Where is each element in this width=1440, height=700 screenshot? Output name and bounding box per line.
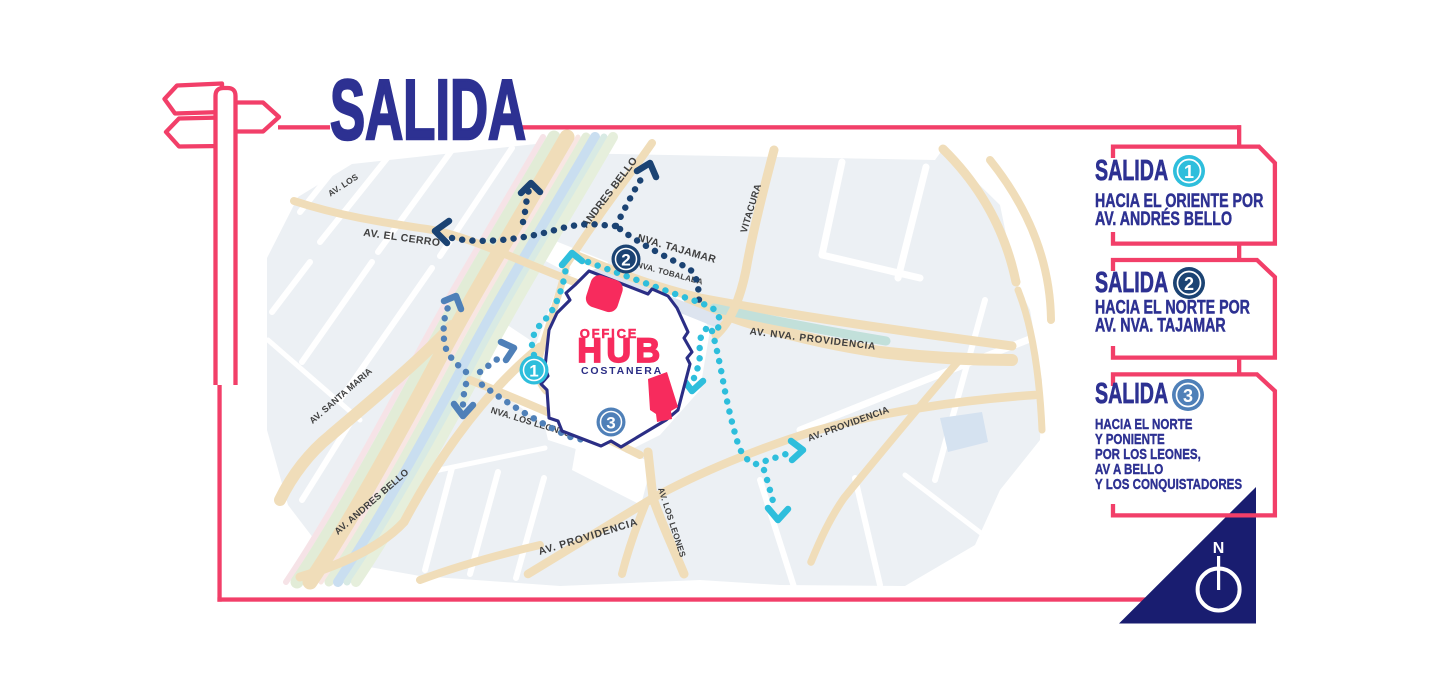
svg-text:1: 1: [1184, 162, 1194, 182]
svg-text:SALIDA: SALIDA: [1095, 268, 1168, 299]
svg-text:N: N: [1213, 540, 1225, 557]
svg-text:SALIDA: SALIDA: [330, 62, 526, 157]
svg-text:3: 3: [1183, 386, 1193, 406]
svg-text:SALIDA: SALIDA: [1095, 379, 1168, 410]
svg-text:AV. NVA. TAJAMAR: AV. NVA. TAJAMAR: [1095, 314, 1226, 336]
svg-text:COSTANERA: COSTANERA: [581, 365, 663, 377]
svg-text:1: 1: [529, 362, 538, 381]
svg-text:2: 2: [1184, 274, 1194, 294]
svg-text:2: 2: [621, 251, 630, 270]
svg-text:Y LOS CONQUISTADORES: Y LOS CONQUISTADORES: [1095, 476, 1242, 493]
svg-text:AV. ANDRÉS BELLO: AV. ANDRÉS BELLO: [1095, 208, 1232, 230]
svg-text:SALIDA: SALIDA: [1095, 156, 1168, 187]
svg-text:3: 3: [606, 414, 615, 433]
